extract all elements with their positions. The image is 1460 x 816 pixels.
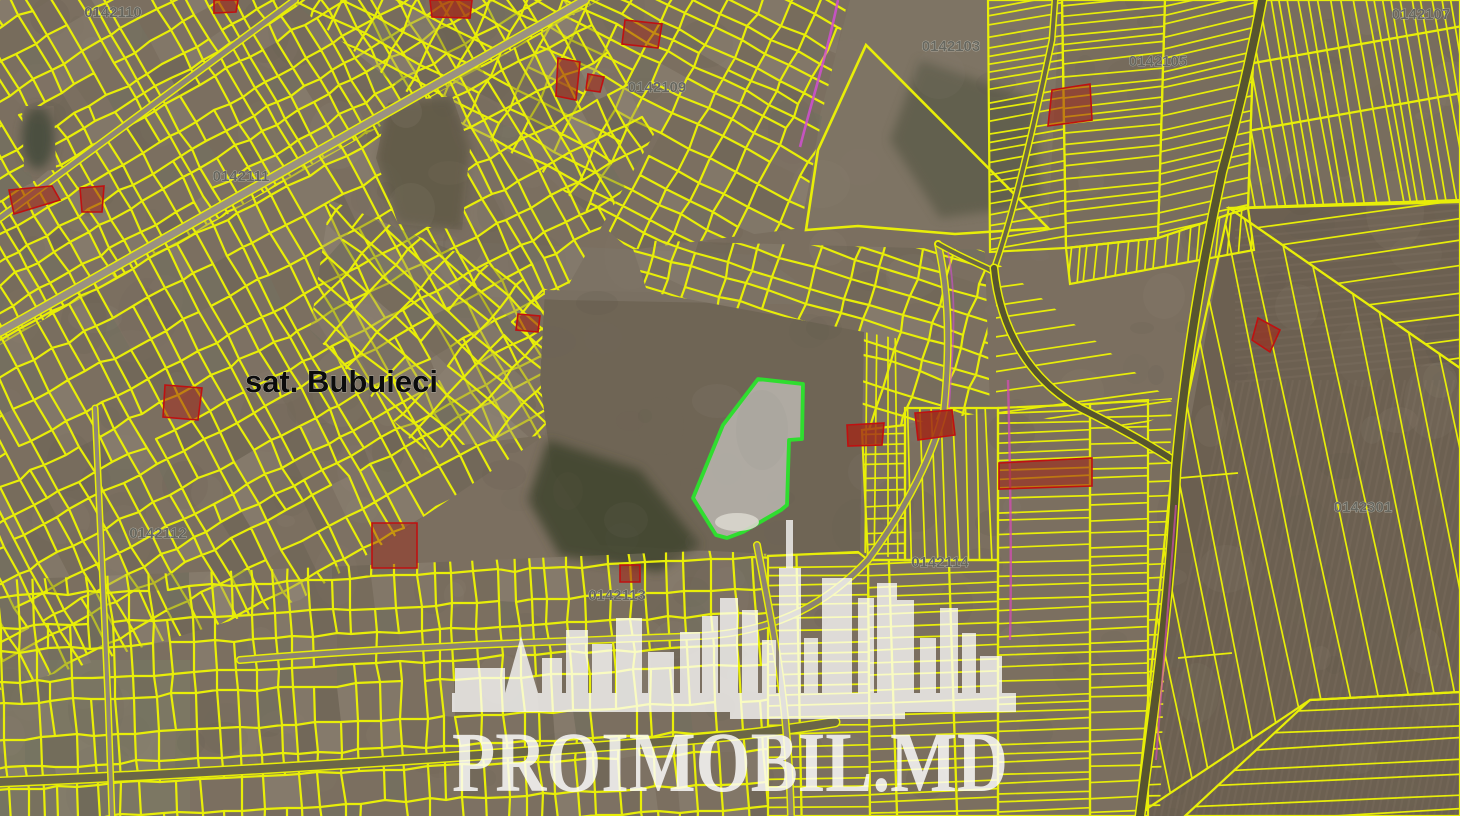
- svg-text:0142105: 0142105: [1129, 53, 1187, 70]
- svg-text:0142103: 0142103: [922, 38, 980, 55]
- svg-text:0142110: 0142110: [84, 4, 142, 21]
- svg-text:0142109: 0142109: [628, 79, 686, 96]
- svg-text:0142114: 0142114: [911, 554, 969, 571]
- svg-text:0142111: 0142111: [213, 168, 270, 185]
- svg-text:0142301: 0142301: [1334, 499, 1392, 516]
- svg-text:0142107: 0142107: [1392, 6, 1450, 23]
- svg-text:PROIMOBIL.MD: PROIMOBIL.MD: [452, 714, 1008, 810]
- svg-text:0142113: 0142113: [588, 587, 646, 604]
- svg-text:sat. Bubuieci: sat. Bubuieci: [245, 364, 438, 399]
- svg-text:0142112: 0142112: [129, 525, 187, 542]
